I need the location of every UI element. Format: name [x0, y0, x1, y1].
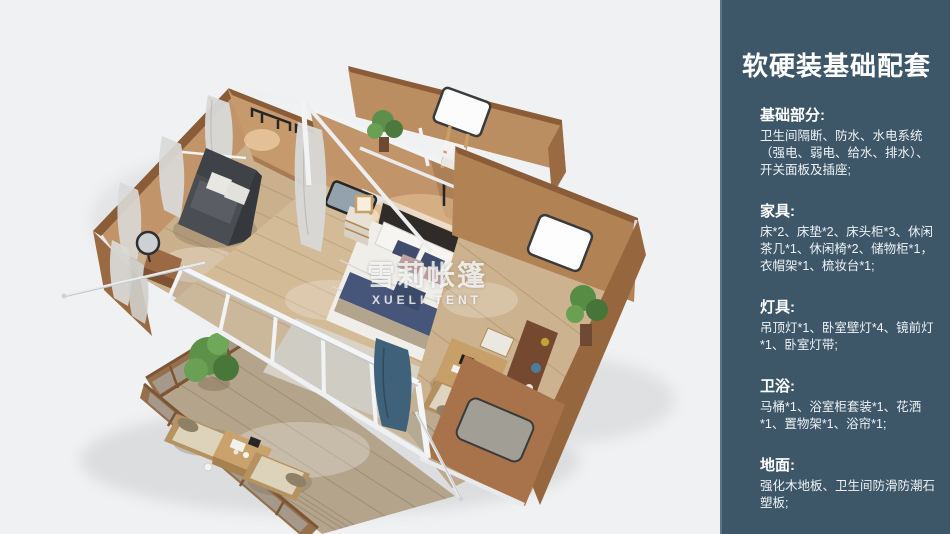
- slide: 雪莉帐篷 XUELI TENT 软硬装基础配套 基础部分: 卫生间隔断、防水、水…: [0, 0, 950, 534]
- bedside-lamp: [356, 196, 372, 212]
- section-bathroom-heading: 卫浴:: [760, 375, 936, 396]
- section-lighting-heading: 灯具:: [760, 296, 936, 317]
- section-basics-heading: 基础部分:: [760, 104, 936, 125]
- bedroom-curtain: [295, 122, 327, 252]
- section-flooring-body: 强化木地板、卫生间防滑防潮石塑板;: [760, 478, 936, 512]
- floorplan-illustration: [0, 0, 720, 534]
- spec-sidebar: 软硬装基础配套 基础部分: 卫生间隔断、防水、水电系统（强电、弱电、给水、排水）…: [720, 0, 950, 534]
- section-furniture-heading: 家具:: [760, 200, 936, 221]
- floorplan-render: 雪莉帐篷 XUELI TENT: [0, 0, 720, 534]
- section-lighting: 灯具: 吊顶灯*1、卧室壁灯*4、镜前灯*1、卧室灯带;: [760, 296, 936, 354]
- section-bathroom-body: 马桶*1、浴室柜套装*1、花洒*1、置物架*1、浴帘*1;: [760, 399, 936, 433]
- round-mirror: [137, 232, 159, 254]
- sidebar-title: 软硬装基础配套: [742, 46, 940, 83]
- section-flooring-heading: 地面:: [760, 454, 936, 475]
- section-flooring: 地面: 强化木地板、卫生间防滑防潮石塑板;: [760, 454, 936, 512]
- spec-sections: 基础部分: 卫生间隔断、防水、水电系统（强电、弱电、给水、排水）、开关面板及插座…: [760, 104, 936, 512]
- section-furniture: 家具: 床*2、床垫*2、床头柜*3、休闲茶几*1、休闲椅*2、储物柜*1，衣帽…: [760, 200, 936, 275]
- section-basics-body: 卫生间隔断、防水、水电系统（强电、弱电、给水、排水）、开关面板及插座;: [760, 128, 936, 179]
- section-basics: 基础部分: 卫生间隔断、防水、水电系统（强电、弱电、给水、排水）、开关面板及插座…: [760, 104, 936, 179]
- section-bathroom: 卫浴: 马桶*1、浴室柜套装*1、花洒*1、置物架*1、浴帘*1;: [760, 375, 936, 433]
- section-lighting-body: 吊顶灯*1、卧室壁灯*4、镜前灯*1、卧室灯带;: [760, 320, 936, 354]
- section-furniture-body: 床*2、床垫*2、床头柜*3、休闲茶几*1、休闲椅*2、储物柜*1，衣帽架*1、…: [760, 224, 936, 275]
- deck-ball-lamp: [204, 463, 212, 471]
